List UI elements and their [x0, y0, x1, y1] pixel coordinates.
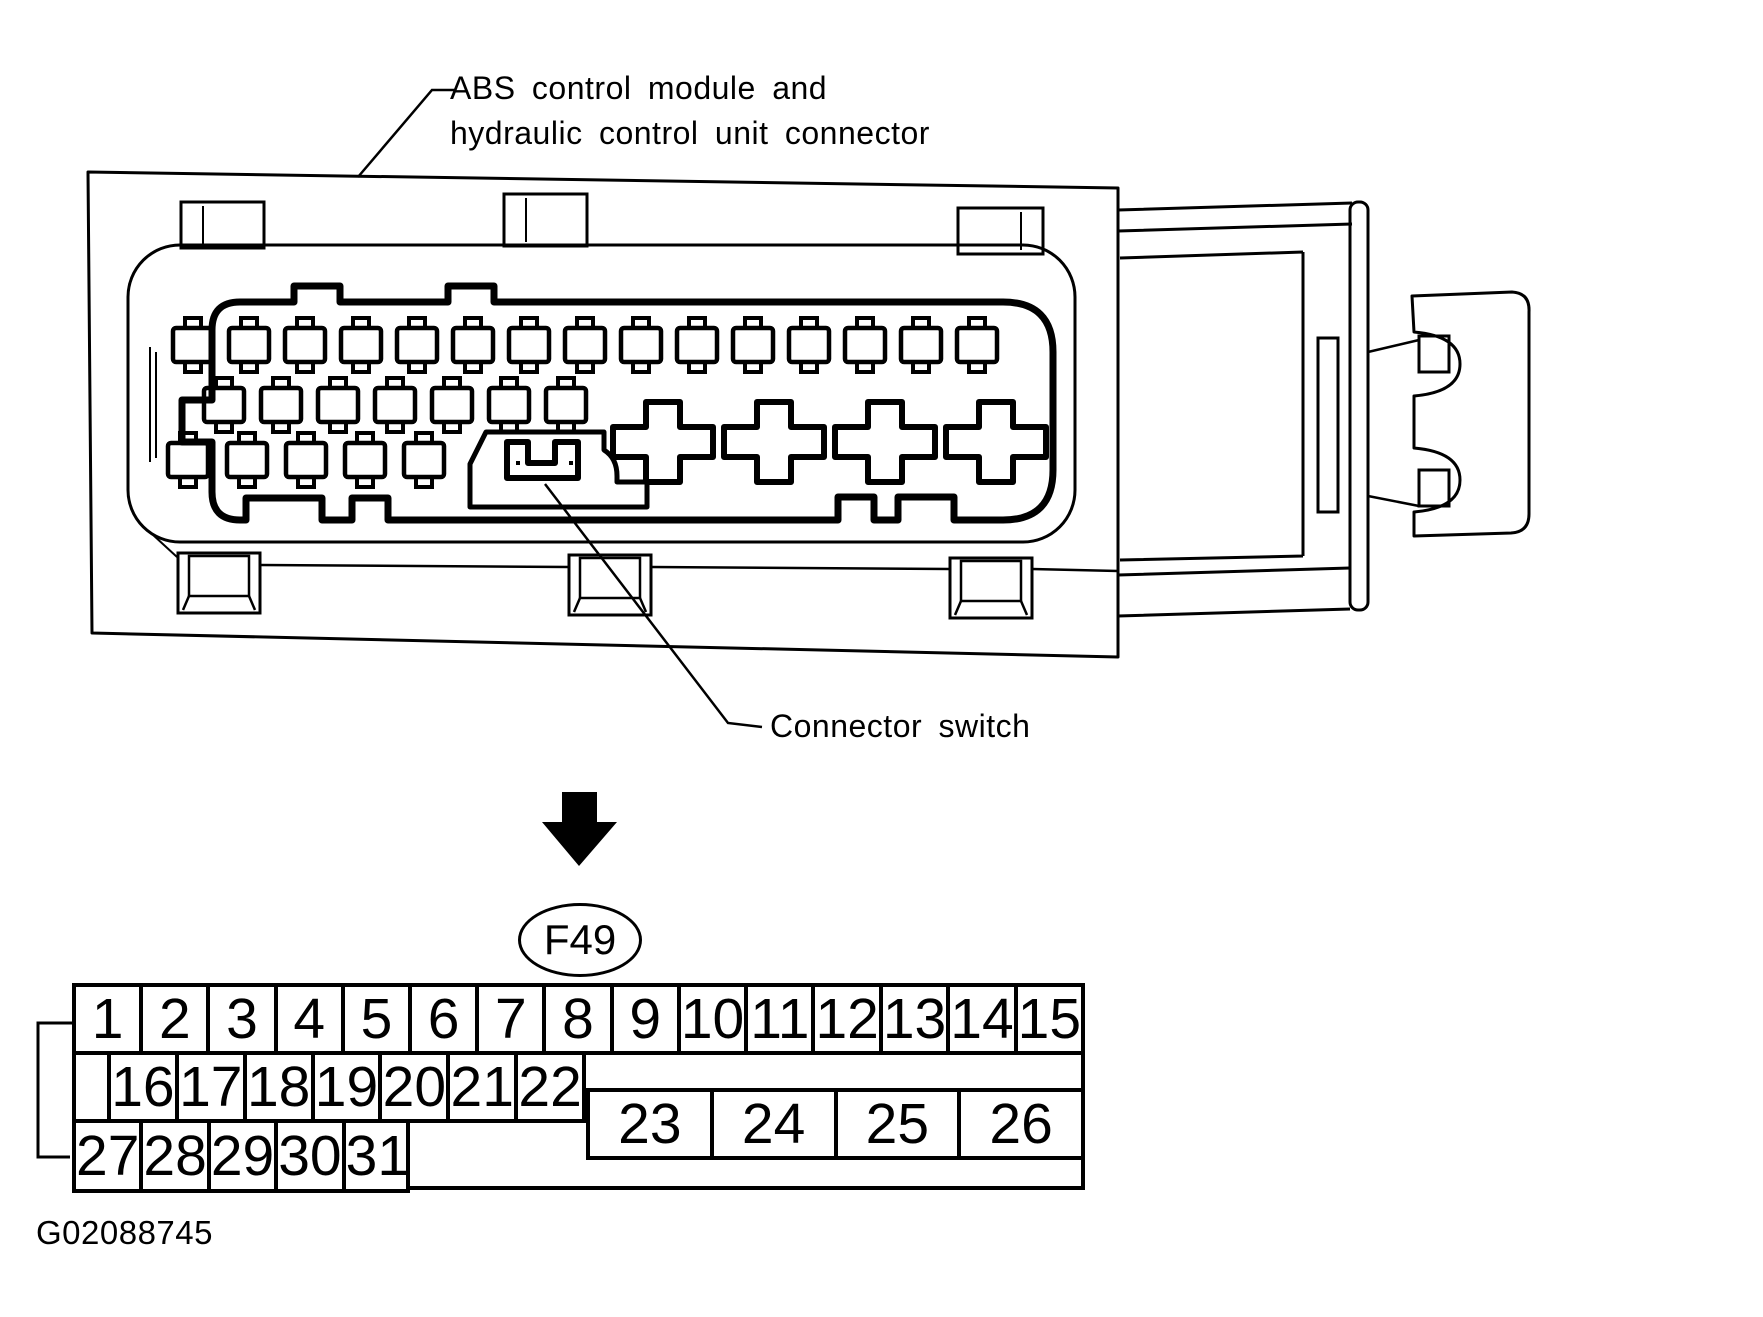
connector-ref-badge: F49	[518, 903, 642, 977]
pin-row-middle	[204, 378, 586, 432]
connector-switch	[470, 432, 647, 507]
pin-cell: 12	[811, 987, 878, 1051]
latch-piece	[1368, 292, 1529, 536]
pin-row-top	[173, 318, 997, 372]
cross-pins	[613, 402, 1046, 482]
pin-cell: 20	[378, 1055, 446, 1119]
figure-code: G02088745	[36, 1214, 213, 1252]
pin-cell: 22	[514, 1055, 582, 1119]
pin-cell: 9	[610, 987, 677, 1051]
module-label-leader	[358, 90, 455, 177]
top-lug-middle	[504, 194, 587, 246]
pin-cell: 3	[206, 987, 273, 1051]
rear-slider-frame	[1118, 202, 1368, 616]
down-arrow-icon	[542, 792, 617, 866]
pin-cell: 25	[834, 1092, 958, 1156]
pin-map-row-23-26: 23242526	[586, 1088, 1085, 1160]
bottom-lug-right	[950, 558, 1032, 618]
pin-cell: 2	[139, 987, 206, 1051]
connector-housing	[88, 172, 1118, 657]
pin-map-row-1-15: 123456789101112131415	[72, 983, 1085, 1055]
pin-cell: 7	[475, 987, 542, 1051]
pin-cell: 31	[342, 1123, 409, 1189]
pin-cell: 15	[1014, 987, 1081, 1051]
pin-cell: 18	[243, 1055, 311, 1119]
pin-cell: 1	[76, 987, 139, 1051]
switch-label: Connector switch	[770, 708, 1030, 745]
pin-cell: 27	[76, 1123, 139, 1189]
pin-cell: 29	[207, 1123, 274, 1189]
pin-cell: 11	[744, 987, 811, 1051]
pin-cell: 13	[879, 987, 946, 1051]
pin-cell: 24	[710, 1092, 834, 1156]
pin-cell: 30	[274, 1123, 341, 1189]
top-lug-left	[181, 202, 264, 248]
top-lug-right	[958, 208, 1043, 254]
pin-cell: 10	[677, 987, 744, 1051]
pin-cell: 23	[590, 1092, 710, 1156]
pin-map-row-16-22: 16171819202122	[72, 1055, 586, 1123]
module-label-line1: ABS control module and	[450, 70, 827, 107]
pin-map-row-27-31: 2728293031	[72, 1123, 410, 1193]
pin-cell: 6	[408, 987, 475, 1051]
pin-cell: 21	[446, 1055, 514, 1119]
pin-cell: 17	[175, 1055, 243, 1119]
slider-slot	[1318, 338, 1338, 512]
pin-cell: 28	[139, 1123, 206, 1189]
pin-map-left-bracket	[38, 1023, 72, 1157]
module-label-line2: hydraulic control unit connector	[450, 115, 930, 152]
pin-cell: 8	[542, 987, 609, 1051]
scanned-diagram-page: ABS control module and hydraulic control…	[0, 0, 1763, 1317]
pin-cell: 19	[311, 1055, 379, 1119]
pin-map-spacer	[76, 1055, 111, 1119]
pin-cell: 5	[341, 987, 408, 1051]
pin-cell: 16	[111, 1055, 175, 1119]
pin-cell: 14	[946, 987, 1013, 1051]
pin-cell: 4	[274, 987, 341, 1051]
pin-cell: 26	[957, 1092, 1081, 1156]
connector-ref-text: F49	[544, 916, 616, 964]
bottom-lug-left	[178, 553, 260, 613]
